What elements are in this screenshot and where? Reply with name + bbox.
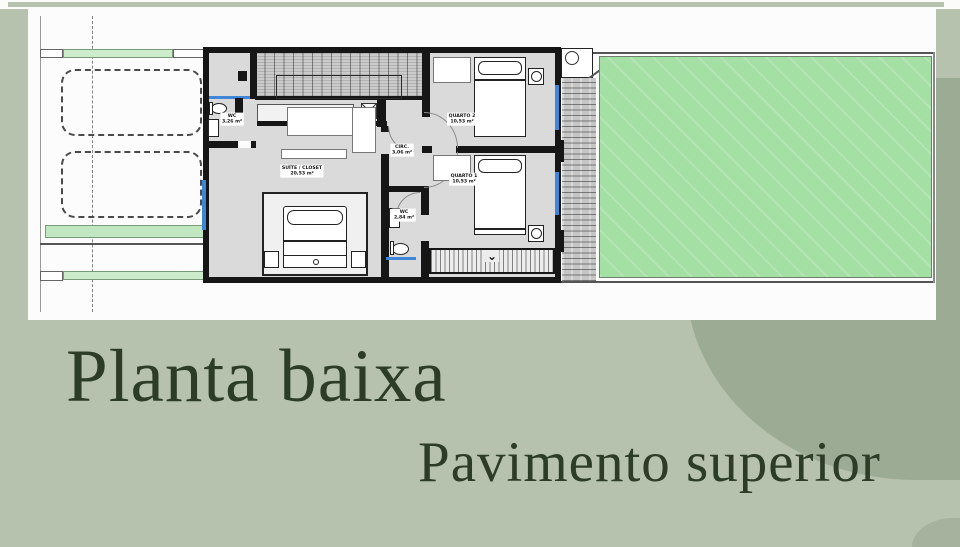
suite-window [202,180,206,230]
planter-strip-rear [63,271,204,280]
window-quarto1 [555,172,559,215]
window-quarto2 [555,85,559,130]
room-area: 10,53 m² [449,119,476,125]
lamp-quarto2 [531,71,542,82]
yard-bottom-line [561,281,935,283]
shower-glass-line [209,96,250,99]
deck-column-1 [556,140,564,162]
blanket-line-quarto2 [474,79,526,81]
garage-back-line [40,243,204,245]
room-area: 20,53 m² [282,171,322,177]
door-gap-wc2 [421,215,429,241]
car-outline-2 [61,151,202,218]
room-label-wc1: WC 3,26 m² [220,113,243,126]
room-label-circ: CIRC. 3,06 m² [390,144,413,157]
pillow-quarto2 [478,61,522,75]
front-wall-segment [173,49,204,58]
barbecue-circle [565,51,579,65]
door-gap-suite [381,132,389,154]
slide-background: ⌄ WC 3,26 m² SUÍTE / CLOSET 20,53 m² CIR… [0,0,960,547]
room-area: 3,06 m² [392,150,412,156]
deck-column-2 [556,230,564,252]
room-area: 3,26 m² [222,119,242,125]
wardrobe-suite-right [352,107,376,153]
toilet-tank-wc2 [390,241,394,255]
wall-stair-quarto2 [422,53,430,117]
top-sage-line [8,2,944,7]
wall-wc1-right [250,53,257,99]
car-outline-1 [61,69,202,136]
plot-boundary-line [40,16,41,312]
room-label-suite: SUÍTE / CLOSET 20,53 m² [280,165,323,178]
yard-top-line [561,52,935,54]
room-label-quarto1: QUARTO 1 10,53 m² [449,173,479,186]
shower-head [238,71,247,81]
planter-strip-middle [45,225,204,238]
nightstand-left [264,251,279,268]
double-bed-blanket-line [283,240,347,242]
deck-strip [562,78,596,281]
wall-shaft-right [377,99,386,127]
lamp-quarto1 [531,228,542,239]
room-area: 10,53 m² [451,179,478,185]
nightstand-right [351,251,366,268]
wardrobe-quarto2 [433,57,471,83]
blanket-line-quarto1 [474,228,526,230]
planter-strip-front [63,49,173,58]
room-label-wc2: WC 2,84 m² [392,209,415,222]
lawn [599,56,932,278]
rear-gate [40,271,63,281]
door-gap-wc1 [238,141,251,148]
room-label-quarto2: QUARTO 2 10,53 m² [447,113,477,126]
suite-shelf [281,149,347,159]
wardrobe-suite-top [287,107,361,136]
toilet-tank-wc1 [209,102,213,115]
room-area: 2,84 m² [394,215,414,221]
window-wc2 [386,257,416,260]
stair-direction-chevron-icon: ⌄ [485,250,499,262]
front-gate [40,49,63,58]
page-title: Planta baixa [66,334,447,420]
double-bed-pillow [287,210,343,225]
foot-band-knob [313,259,319,265]
plot-right-line [933,52,935,283]
sink-wc1 [208,119,219,137]
wall-quarto2-quarto1 [456,146,557,153]
page-subtitle: Pavimento superior [418,430,881,495]
pillow-quarto1 [478,159,522,173]
toilet-wc2 [392,243,409,255]
stair-rail [276,75,402,99]
accent-blob-corner [912,518,960,547]
